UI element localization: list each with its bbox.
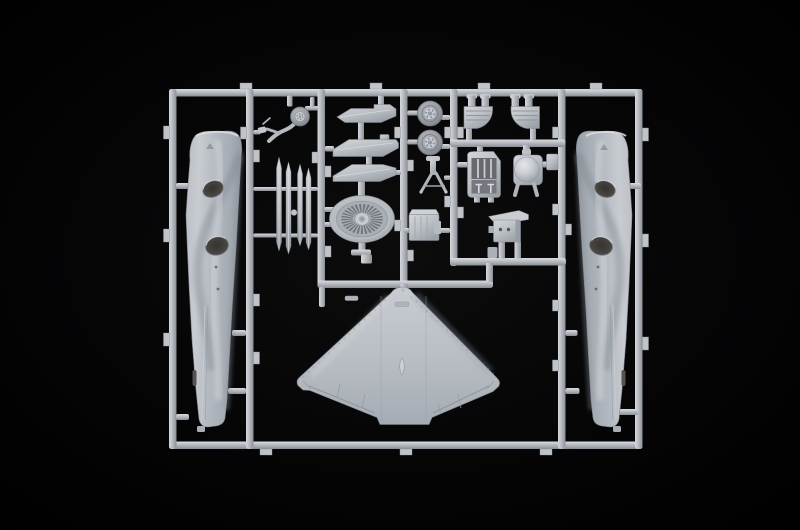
- frame-rail-right: [635, 89, 643, 449]
- stub-nosegear-up: [310, 97, 315, 107]
- pod-hole: [507, 228, 510, 231]
- gate-tab: [254, 352, 260, 364]
- stub-intake-right: [530, 129, 536, 141]
- intake-tab: [468, 96, 476, 108]
- instrument-console: [468, 152, 501, 203]
- wing-rail-riser: [486, 263, 493, 282]
- inner-rail-3: [400, 89, 408, 288]
- stub-console-left: [458, 162, 469, 168]
- inner-rail-2: [318, 89, 326, 288]
- fuselage-hole-dot: [595, 288, 598, 291]
- stub-intake-left: [466, 129, 472, 141]
- wing-gate-stub-left: [319, 287, 325, 307]
- stub-wheel1-left: [408, 111, 419, 116]
- wheel-axle: [428, 112, 431, 115]
- pod-foot-block: [488, 247, 498, 258]
- engine-fan-disc: [330, 196, 395, 243]
- fuselage-gate-nub: [197, 426, 205, 432]
- wing-recess-mark: [345, 296, 358, 301]
- sprue-photo-canvas: Photograph of a light-gray injection-mol…: [0, 0, 800, 530]
- fuselage-gate-nub: [613, 426, 621, 432]
- gate-tab: [240, 83, 252, 89]
- gate-tab: [254, 294, 260, 306]
- stub-fuselage-rail1-a: [232, 330, 246, 336]
- frame-rail-left: [169, 89, 177, 449]
- gate-tab: [164, 229, 170, 242]
- fan-spinner-dot: [361, 218, 364, 221]
- console-foot: [474, 198, 480, 203]
- gate-tab: [164, 126, 170, 139]
- intake-tab: [482, 96, 490, 108]
- nose-wheel-axle: [299, 115, 301, 117]
- intake-tab: [512, 96, 520, 108]
- main-wheel-1: [418, 101, 443, 126]
- gate-tab: [325, 246, 331, 257]
- gate-strake1: [378, 96, 384, 106]
- gate-tab: [553, 360, 559, 371]
- wheel-axle: [428, 141, 431, 144]
- gate-tab: [478, 83, 490, 89]
- model-kit-sprue-photo: Photograph of a light-gray injection-mol…: [0, 0, 800, 530]
- inner-rail-intake: [450, 140, 566, 148]
- gate-tab: [395, 127, 401, 138]
- inner-rail-1: [246, 89, 254, 449]
- wing-apex-nub: [401, 288, 405, 292]
- pod-leg-left: [499, 242, 506, 259]
- fuselage-hole-dot: [597, 266, 600, 269]
- stub-left-fuselage-bottom: [176, 414, 189, 420]
- gate-tab: [540, 449, 552, 455]
- console-foot: [488, 198, 494, 203]
- pod-leg-right: [515, 242, 522, 259]
- tripod-foot: [444, 190, 447, 193]
- tank-top-nub: [522, 149, 531, 156]
- stub-rail5-fuselage-b: [566, 388, 580, 394]
- gate-tab: [400, 449, 412, 455]
- gate-tab: [458, 207, 464, 218]
- blade-hub-nub: [291, 210, 297, 216]
- link-strake1-2: [358, 121, 364, 140]
- equipment-box: [409, 210, 441, 241]
- fuselage-slot: [622, 370, 626, 386]
- gate-tab: [458, 127, 464, 138]
- intake-tab: [525, 96, 533, 108]
- gate-tab: [408, 250, 414, 261]
- gate-tab: [241, 127, 247, 139]
- gate-tab: [566, 224, 572, 235]
- pod-hole: [499, 228, 502, 231]
- gate-tab: [445, 196, 451, 207]
- gate-tab: [643, 337, 649, 350]
- gate-tab: [312, 152, 318, 163]
- inner-rail-equipment: [450, 258, 566, 266]
- stub-strake2-left: [325, 146, 334, 152]
- stub-fuselage-rail1-b: [228, 388, 246, 394]
- gate-tab: [164, 333, 170, 346]
- gate-tab: [553, 300, 559, 311]
- pod-side-facet: [516, 220, 521, 242]
- gate-tab: [643, 128, 649, 141]
- tank-bracket: [547, 154, 559, 170]
- frame-rail-bottom: [169, 442, 643, 450]
- stub-wheel2-left: [408, 140, 419, 145]
- console-recess-lower: [472, 180, 497, 194]
- gate-nose-wheel: [287, 96, 293, 107]
- gate-tab: [590, 83, 602, 89]
- fuselage-hole-dot: [217, 288, 220, 291]
- gate-tab: [325, 166, 331, 177]
- pod-side-tab: [489, 226, 494, 233]
- wing-recess-mark: [395, 302, 409, 307]
- link-strake3-fan: [358, 180, 365, 197]
- inner-rail-4: [450, 89, 458, 266]
- gate-tab: [370, 83, 382, 89]
- gate-tab: [260, 449, 272, 455]
- equipment-box-top: [409, 210, 439, 215]
- gate-tab: [254, 150, 260, 162]
- fuselage-slot: [193, 370, 197, 386]
- stub-right-fuselage-top: [629, 183, 641, 189]
- gate-tab: [395, 220, 401, 231]
- gate-tab: [408, 160, 414, 171]
- gate-tab: [445, 127, 451, 138]
- stub-left-fuselage-top: [176, 183, 189, 189]
- stub-rail5-fuselage-a: [566, 330, 578, 336]
- main-wheel-2: [418, 130, 443, 155]
- gate-tab: [553, 127, 559, 138]
- gate-tab: [553, 204, 559, 215]
- equipment-box-notch: [434, 221, 441, 234]
- tank-dome: [515, 157, 540, 182]
- gate-tab: [643, 234, 649, 247]
- tripod-foot: [419, 190, 422, 193]
- stub-tripod: [444, 176, 451, 181]
- fuselage-hole-dot: [215, 266, 218, 269]
- fan-gate-block: [361, 255, 372, 264]
